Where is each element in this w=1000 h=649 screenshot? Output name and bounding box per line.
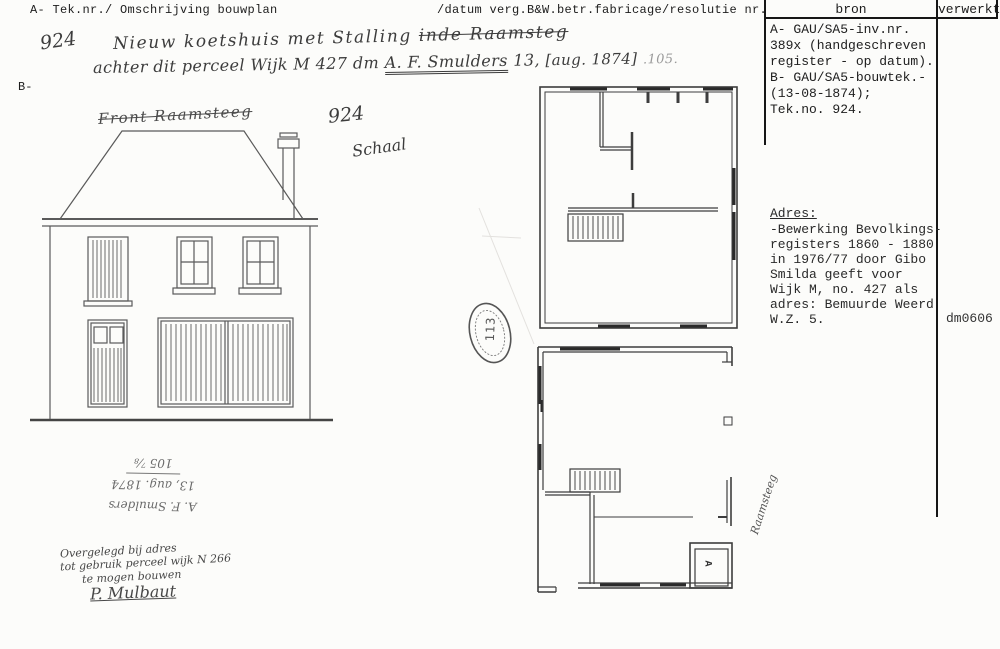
- facade-title: Front Raamsteeg: [98, 102, 253, 128]
- column-header-verwerkt: verwerkt: [938, 2, 998, 17]
- facade-elevation-drawing: [30, 131, 333, 420]
- inverted-bleedthrough-note: A. F. Smulders 13, aug. 1874 105 ⅞: [77, 451, 228, 518]
- signature: P. Mulbaut: [90, 580, 232, 604]
- bron-box-left-border: [764, 0, 766, 145]
- adres-title: Adres:: [770, 206, 948, 221]
- b-section-label: B-: [18, 80, 32, 94]
- ground-floor-plan-drawing: [538, 347, 732, 592]
- document-code: dm0606: [946, 311, 993, 326]
- bron-text-line: A- GAU/SA5-inv.nr.: [770, 22, 945, 38]
- header-middle-label: /datum verg.B&W.betr.fabricage/resolutie…: [437, 3, 767, 17]
- bron-text-line: (13-08-1874);: [770, 86, 945, 102]
- table-right-border: [996, 0, 998, 17]
- column-header-bron: bron: [766, 2, 936, 17]
- description-struck-part: inde Raamsteg: [419, 22, 569, 46]
- handwritten-remark-block: Overgelegd bij adres tot gebruik perceel…: [60, 543, 231, 601]
- header-left-label: A- Tek.nr./ Omschrijving bouwplan: [30, 3, 278, 17]
- inverted-note-line: 13, aug. 1874: [78, 473, 228, 497]
- adres-text-line: in 1976/77 door Gibo: [770, 252, 948, 267]
- faint-number: .105.: [643, 52, 678, 68]
- handwritten-description-line1: Nieuw koetshuis met Stalling inde Raamst…: [113, 22, 569, 54]
- description-part: 13,: [508, 50, 540, 70]
- handwritten-description-line2: achter dit perceel Wijk M 427 dm A. F. S…: [93, 48, 678, 77]
- description-part: achter dit perceel Wijk M 427 dm: [93, 53, 385, 77]
- adres-text-line: Wijk M, no. 427 als: [770, 282, 948, 297]
- applicant-name: A. F. Smulders: [384, 51, 508, 75]
- bron-text-line: B- GAU/SA5-bouwtek.-: [770, 70, 945, 86]
- adres-text-line: adres: Bemuurde Weerd: [770, 297, 948, 312]
- adres-text-line: Smilda geeft voor: [770, 267, 948, 282]
- handwritten-tek-nr: 924: [39, 28, 78, 55]
- bron-text-line: register - op datum).: [770, 54, 945, 70]
- bron-text-line: 389x (handgeschreven: [770, 38, 945, 54]
- bron-text-line: Tek.no. 924.: [770, 102, 945, 118]
- inverted-note-number: 105 ⅞: [126, 452, 181, 475]
- scale-label: Schaal: [351, 134, 408, 160]
- street-name-vertical: Raamsteeg: [748, 473, 780, 536]
- description-part: Nieuw koetshuis met Stalling: [113, 26, 419, 54]
- room-label: A: [702, 560, 713, 566]
- header-underline: [764, 17, 998, 19]
- archive-card: A- Tek.nr./ Omschrijving bouwplan /datum…: [0, 0, 1000, 649]
- plan-number: 924: [327, 102, 365, 128]
- date-annotation: [aug. 1874]: [545, 50, 637, 70]
- stamp-number: 113: [483, 316, 498, 341]
- upper-floor-plan-drawing: [540, 87, 737, 412]
- adres-text-line: W.Z. 5.: [770, 312, 948, 327]
- adres-text-line: -Bewerking Bevolkings-: [770, 222, 948, 237]
- adres-text-line: registers 1860 - 1880: [770, 237, 948, 252]
- inverted-note-line: A. F. Smulders: [77, 494, 227, 518]
- inverted-note-line: 105 ⅞: [78, 451, 228, 476]
